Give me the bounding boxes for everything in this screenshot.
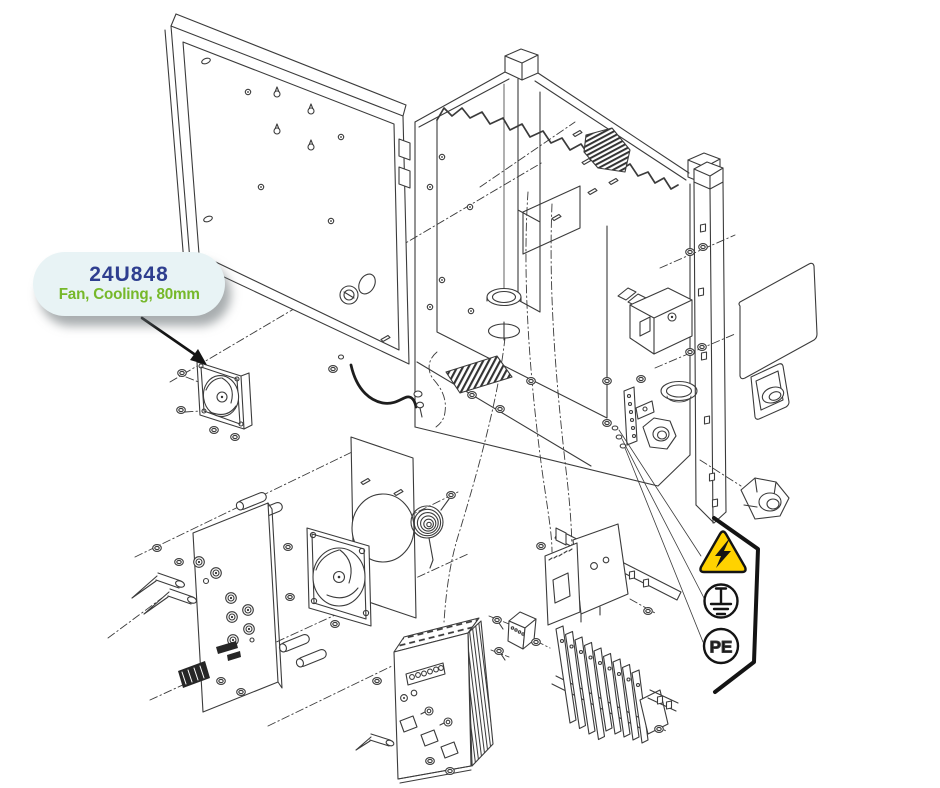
part-callout[interactable]: 24U848 Fan, Cooling, 80mm	[33, 252, 225, 316]
temperature-probes	[132, 573, 197, 614]
pe-symbol: PE	[704, 629, 738, 663]
contactor-din-rail	[537, 524, 681, 625]
protective-earth-icon	[705, 585, 738, 618]
safety-symbols: PE	[700, 518, 758, 692]
ring-grommet	[661, 382, 697, 403]
label-sheet	[739, 263, 817, 378]
terminal-blocks	[532, 626, 678, 743]
breaker-block	[618, 288, 692, 354]
diagram-svg: PE	[0, 0, 940, 788]
part-number: 24U848	[89, 263, 169, 286]
exploded-parts-diagram: PE 24U848 Fan, Cooling, 80mm	[0, 0, 940, 788]
cooling-fan-80mm	[177, 362, 252, 440]
enclosure-box	[415, 49, 720, 486]
heater-coil	[411, 492, 455, 568]
cable-gland	[741, 478, 789, 519]
callout-arrow	[142, 318, 207, 365]
control-module	[356, 618, 493, 783]
part-description: Fan, Cooling, 80mm	[58, 286, 199, 304]
door-panel	[165, 14, 424, 417]
relay-block	[493, 612, 536, 660]
pe-label: PE	[710, 638, 733, 657]
mounting-rail	[686, 162, 726, 523]
floor-hex-gland	[643, 418, 676, 449]
symbol-leader-lines	[619, 430, 704, 642]
grommet	[487, 289, 521, 306]
